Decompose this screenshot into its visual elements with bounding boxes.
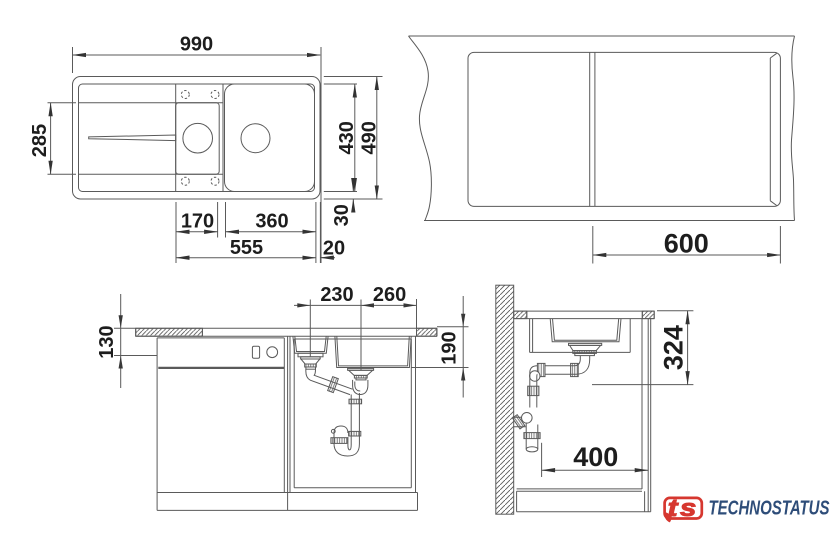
svg-text:360: 360	[255, 211, 288, 233]
svg-text:20: 20	[323, 238, 345, 260]
svg-text:400: 400	[573, 442, 618, 472]
svg-text:490: 490	[359, 121, 381, 154]
svg-text:170: 170	[181, 211, 214, 233]
svg-text:30: 30	[331, 204, 353, 226]
svg-text:990: 990	[180, 34, 213, 56]
svg-text:230: 230	[320, 284, 353, 306]
svg-text:430: 430	[336, 121, 358, 154]
svg-text:ts: ts	[668, 495, 699, 522]
svg-text:190: 190	[439, 331, 461, 364]
svg-text:TECHNOSTATUS: TECHNOSTATUS	[709, 496, 830, 519]
svg-text:260: 260	[373, 284, 406, 306]
svg-text:130: 130	[96, 325, 118, 358]
svg-text:555: 555	[230, 237, 263, 259]
svg-text:600: 600	[664, 229, 709, 259]
svg-text:324: 324	[658, 325, 688, 370]
svg-text:285: 285	[29, 124, 51, 157]
